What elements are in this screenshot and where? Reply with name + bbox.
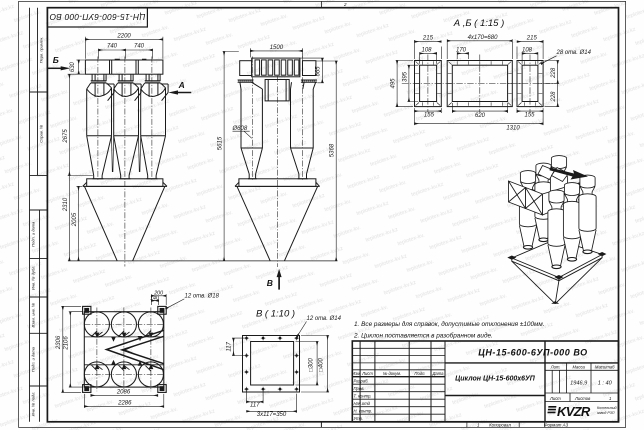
- svg-text:Циклон ЦН-15-600х6УП: Циклон ЦН-15-600х6УП: [455, 376, 536, 383]
- svg-text:□300: □300: [309, 358, 315, 372]
- svg-text:Формат А3: Формат А3: [544, 423, 569, 428]
- svg-text:Ø608: Ø608: [232, 126, 248, 132]
- svg-text:140: 140: [150, 296, 159, 302]
- svg-text:Перв. примен.: Перв. примен.: [39, 37, 44, 64]
- svg-text:Т. контр.: Т. контр.: [354, 394, 372, 399]
- svg-text:Н. контр.: Н. контр.: [354, 409, 373, 414]
- svg-text:28 отв. Ø14: 28 отв. Ø14: [556, 50, 592, 56]
- svg-text:завод РЗП: завод РЗП: [596, 411, 615, 415]
- svg-text:ЦН-15-600-6УП-000 ВО: ЦН-15-600-6УП-000 ВО: [49, 12, 145, 22]
- svg-text:3x117=350: 3x117=350: [257, 412, 287, 418]
- svg-text:KVZR: KVZR: [557, 404, 591, 419]
- svg-text:630: 630: [70, 61, 76, 72]
- svg-text:Масштаб: Масштаб: [595, 364, 615, 369]
- svg-text:740: 740: [107, 44, 118, 50]
- svg-text:155: 155: [424, 113, 435, 119]
- svg-text:Нач.отд: Нач.отд: [354, 401, 371, 406]
- svg-text:2675: 2675: [63, 129, 69, 144]
- svg-text:Пров.: Пров.: [354, 386, 365, 391]
- svg-text:117: 117: [227, 341, 233, 351]
- svg-text:5368: 5368: [330, 143, 336, 157]
- svg-text:□400: □400: [319, 358, 325, 372]
- svg-text:Инв. № подл.: Инв. № подл.: [31, 391, 36, 416]
- svg-text:495: 495: [391, 78, 397, 89]
- svg-text:Листов: Листов: [574, 396, 591, 401]
- svg-text:395: 395: [402, 71, 408, 82]
- svg-text:2310: 2310: [63, 197, 69, 212]
- svg-text:Подп. и дата: Подп. и дата: [31, 221, 36, 247]
- svg-text:2286: 2286: [117, 401, 132, 407]
- svg-text:108: 108: [522, 47, 533, 53]
- svg-text:1: 1: [609, 396, 611, 401]
- svg-text:740: 740: [134, 44, 145, 50]
- svg-text:Подп. и дата: Подп. и дата: [31, 346, 36, 372]
- svg-text:Справ. №: Справ. №: [39, 124, 44, 143]
- svg-text:228: 228: [551, 91, 557, 103]
- svg-text:Изм: Изм: [352, 371, 360, 376]
- svg-text:Котельный: Котельный: [597, 406, 617, 410]
- svg-text:Разраб.: Разраб.: [354, 379, 369, 384]
- svg-text:Подп.: Подп.: [414, 371, 425, 376]
- svg-text:12 отв. Ø14: 12 отв. Ø14: [307, 316, 342, 322]
- svg-text:12 отв. Ø18: 12 отв. Ø18: [185, 294, 220, 300]
- svg-text:ЦН-15-600-6УП-000 ВО: ЦН-15-600-6УП-000 ВО: [478, 347, 587, 357]
- svg-text:А ,Б ( 1:15 ): А ,Б ( 1:15 ): [453, 18, 505, 29]
- svg-text:4x170=680: 4x170=680: [468, 35, 499, 41]
- svg-text:5615: 5615: [218, 136, 224, 150]
- svg-text:Инв. № дубл.: Инв. № дубл.: [31, 265, 36, 290]
- svg-text:Лист: Лист: [549, 396, 561, 401]
- svg-text:215: 215: [526, 36, 538, 42]
- svg-text:№ докум.: № докум.: [383, 371, 401, 376]
- svg-text:117: 117: [250, 402, 260, 408]
- svg-text:665: 665: [316, 66, 322, 77]
- svg-text:Лист: Лист: [361, 371, 373, 376]
- svg-text:А: А: [178, 80, 185, 90]
- svg-text:170: 170: [456, 47, 467, 53]
- svg-text:Утв.: Утв.: [354, 416, 364, 421]
- svg-text:Б: Б: [53, 55, 59, 65]
- svg-text:В ( 1:10 ): В ( 1:10 ): [256, 309, 295, 320]
- svg-text:1500: 1500: [270, 45, 284, 51]
- svg-text:1946,9: 1946,9: [570, 381, 587, 387]
- svg-text:1 : 40: 1 : 40: [598, 381, 613, 387]
- svg-text:155: 155: [524, 113, 535, 119]
- svg-text:2086: 2086: [116, 390, 131, 396]
- svg-text:Дата: Дата: [431, 371, 444, 376]
- svg-text:215: 215: [422, 36, 434, 42]
- svg-text:108: 108: [421, 47, 432, 53]
- svg-text:2005: 2005: [72, 212, 78, 227]
- svg-text:1310: 1310: [506, 125, 520, 131]
- svg-text:2306: 2306: [56, 335, 62, 350]
- svg-text:1. Все размеры для справок, до: 1. Все размеры для справок, допустимые о…: [354, 320, 545, 328]
- svg-text:Масса: Масса: [573, 364, 586, 369]
- svg-text:Лит.: Лит.: [550, 364, 561, 369]
- svg-text:2. Циклон поставляется в разоб: 2. Циклон поставляется в разобранном вид…: [353, 332, 493, 340]
- svg-text:620: 620: [475, 113, 486, 119]
- svg-text:228: 228: [551, 67, 557, 79]
- svg-text:2200: 2200: [116, 34, 131, 40]
- svg-text:2106: 2106: [63, 336, 69, 351]
- svg-text:Взам. инв. №: Взам. инв. №: [31, 302, 36, 327]
- svg-text:2: 2: [343, 2, 347, 7]
- svg-text:Копировал: Копировал: [489, 423, 511, 428]
- svg-text:В: В: [267, 278, 273, 288]
